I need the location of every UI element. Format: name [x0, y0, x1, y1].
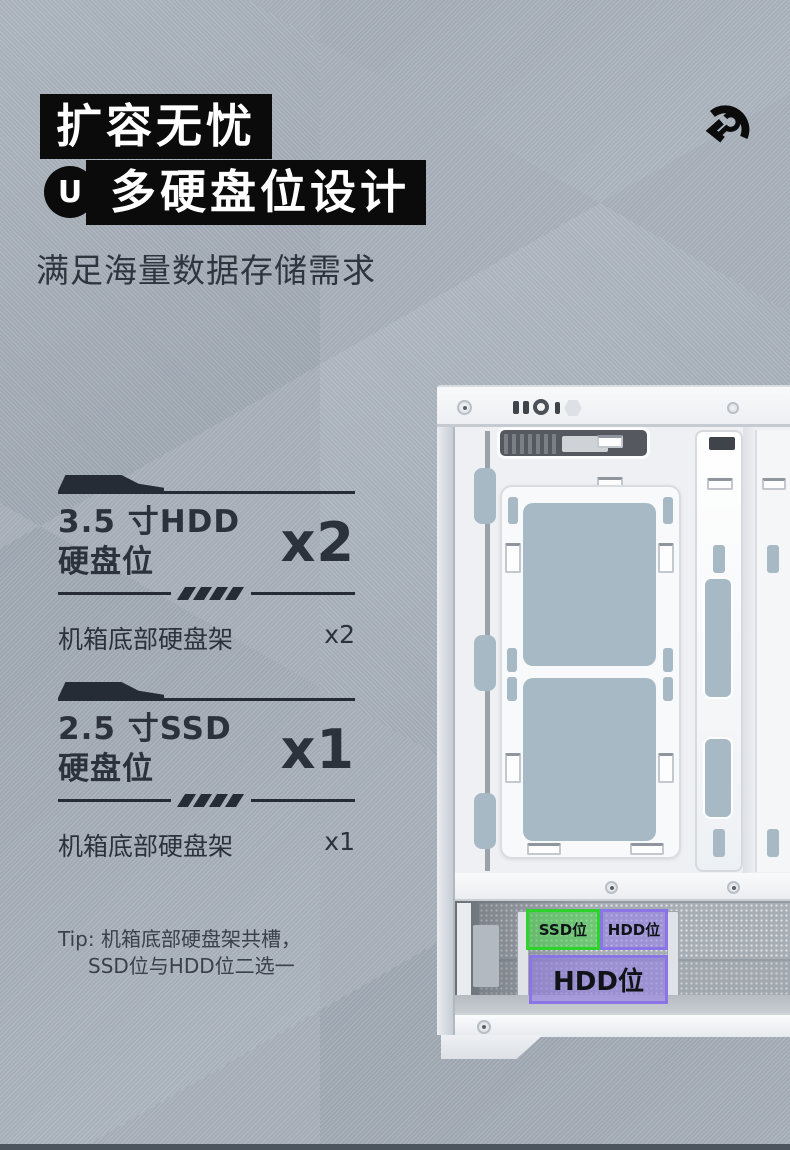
panel-seam: [743, 427, 755, 873]
divider-line: [251, 799, 355, 802]
slot-cutout: [713, 545, 725, 573]
spec-name-line1: 3.5 寸HDD: [58, 502, 240, 542]
punched-tab: [762, 478, 786, 490]
slot-cutout: [663, 648, 673, 672]
spec-block-hdd: 3.5 寸HDD 硬盘位 x2 机箱底部硬盘架 x2: [58, 476, 355, 656]
spec-detail-label: 机箱底部硬盘架: [58, 620, 233, 656]
slot-cutout: [508, 497, 518, 524]
spec-count: x1: [281, 718, 355, 781]
power-button: [533, 399, 549, 415]
case-top-bar: [437, 385, 790, 427]
hash-divider: [58, 794, 355, 807]
hash-divider: [58, 587, 355, 600]
brand-logo-icon: [698, 96, 756, 152]
tip-line2: SSD位与HDD位二选一: [58, 953, 301, 980]
pc-case-photo: SSD位 HDD位 HDD位: [437, 385, 790, 1058]
spec-header-rule: [58, 476, 355, 494]
screw-icon: [605, 881, 618, 894]
slot-cutout: [767, 829, 779, 857]
hdd-bay-label-small: HDD位: [608, 919, 660, 940]
divider-line: [58, 799, 171, 802]
cable-passthrough: [703, 737, 733, 819]
fan-blades: [504, 434, 556, 454]
punched-tab: [527, 843, 561, 855]
flag-shape: [58, 475, 164, 491]
punched-tab: [658, 543, 674, 573]
hex-vent-hole: [564, 400, 582, 416]
page-title-line2: 多硬盘位设计: [86, 160, 426, 225]
punched-tab: [597, 435, 623, 448]
spec-name-line2: 硬盘位: [58, 542, 240, 582]
slot-cutout: [709, 437, 735, 450]
footer-strip: [0, 1144, 790, 1150]
spec-detail-count: x2: [324, 620, 355, 656]
punched-tab: [707, 478, 733, 490]
io-port: [523, 401, 529, 414]
hdd-bay-label-large: HDD位: [553, 961, 644, 998]
case-base-bar: [455, 1013, 790, 1037]
screw-icon: [727, 881, 740, 894]
cable-passthrough: [703, 577, 733, 699]
screw-icon: [727, 402, 739, 414]
punched-tab: [505, 543, 521, 573]
divider-line: [58, 592, 171, 595]
slot-cutout: [767, 545, 779, 573]
spec-name-line2: 硬盘位: [58, 749, 232, 789]
fan-mount-cutout: [523, 678, 656, 841]
promo-page: 扩容无忧 U 多硬盘位设计 满足海量数据存储需求 3.5 寸HDD 硬盘位 x2…: [0, 0, 790, 1150]
hash-marks-icon: [179, 587, 243, 600]
case-front-edge: [437, 427, 455, 1035]
slot-cutout: [713, 829, 725, 857]
hdd-bay-highlight-large: HDD位: [529, 955, 668, 1004]
hash-marks-icon: [179, 794, 243, 807]
spec-block-ssd: 2.5 寸SSD 硬盘位 x1 机箱底部硬盘架 x1: [58, 683, 355, 863]
u-badge-icon: U: [44, 166, 96, 218]
io-port: [513, 401, 519, 414]
tip-line1: Tip: 机箱底部硬盘架共槽，: [58, 926, 301, 953]
divider-line: [251, 592, 355, 595]
slot-cutout: [507, 677, 517, 701]
case-foot: [441, 1035, 543, 1059]
page-subtitle: 满足海量数据存储需求: [36, 244, 376, 292]
top-fan-vent: [497, 427, 650, 459]
ssd-bay-label: SSD位: [539, 919, 587, 940]
spec-name-line1: 2.5 寸SSD: [58, 709, 232, 749]
cable-grommet: [474, 468, 496, 524]
spec-count: x2: [281, 511, 355, 574]
shroud-top-rail: [455, 873, 790, 901]
spec-header-rule: [58, 683, 355, 701]
punched-tab: [630, 843, 664, 855]
cable-grommet: [474, 793, 496, 849]
spec-name: 3.5 寸HDD 硬盘位: [58, 502, 240, 582]
hdd-cage-post: [667, 911, 679, 1007]
title-line2-box: U 多硬盘位设计: [40, 160, 426, 225]
spec-name: 2.5 寸SSD 硬盘位: [58, 709, 232, 789]
spec-detail-label: 机箱底部硬盘架: [58, 827, 233, 863]
ssd-bay-highlight: SSD位: [526, 909, 600, 950]
title-line1-box: 扩容无忧: [40, 94, 272, 159]
page-title-line1: 扩容无忧: [40, 94, 272, 159]
drive-bracket: [473, 925, 499, 987]
tip-note: Tip: 机箱底部硬盘架共槽， SSD位与HDD位二选一: [58, 926, 301, 980]
slot-cutout: [507, 648, 517, 672]
screw-icon: [477, 1020, 491, 1034]
screw-icon: [457, 400, 472, 415]
hdd-bay-highlight-small: HDD位: [600, 909, 668, 950]
slot-cutout: [663, 677, 673, 701]
cable-grommet: [474, 635, 496, 691]
slot-cutout: [663, 497, 673, 524]
flag-shape: [58, 682, 164, 698]
punched-tab: [658, 753, 674, 783]
spec-detail-count: x1: [324, 827, 355, 863]
rear-panel-column: [755, 430, 790, 872]
punched-tab: [505, 753, 521, 783]
io-port: [555, 402, 560, 414]
fan-mount-cutout: [523, 503, 656, 666]
